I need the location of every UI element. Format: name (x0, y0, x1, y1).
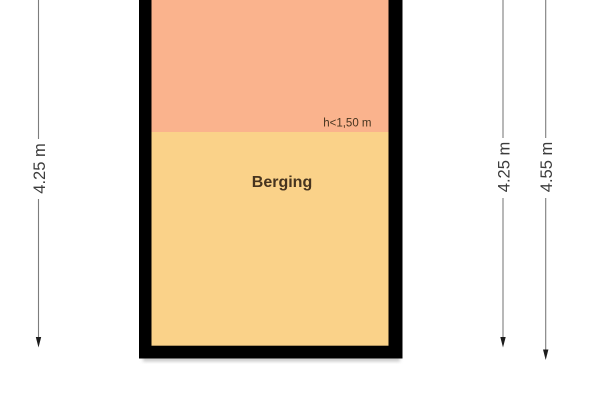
svg-text:4.25 m: 4.25 m (31, 143, 49, 193)
svg-text:4.25 m: 4.25 m (495, 142, 513, 192)
svg-text:4.55 m: 4.55 m (538, 142, 556, 192)
svg-text:Berging: Berging (252, 174, 312, 191)
svg-text:h<1,50 m: h<1,50 m (323, 117, 371, 129)
